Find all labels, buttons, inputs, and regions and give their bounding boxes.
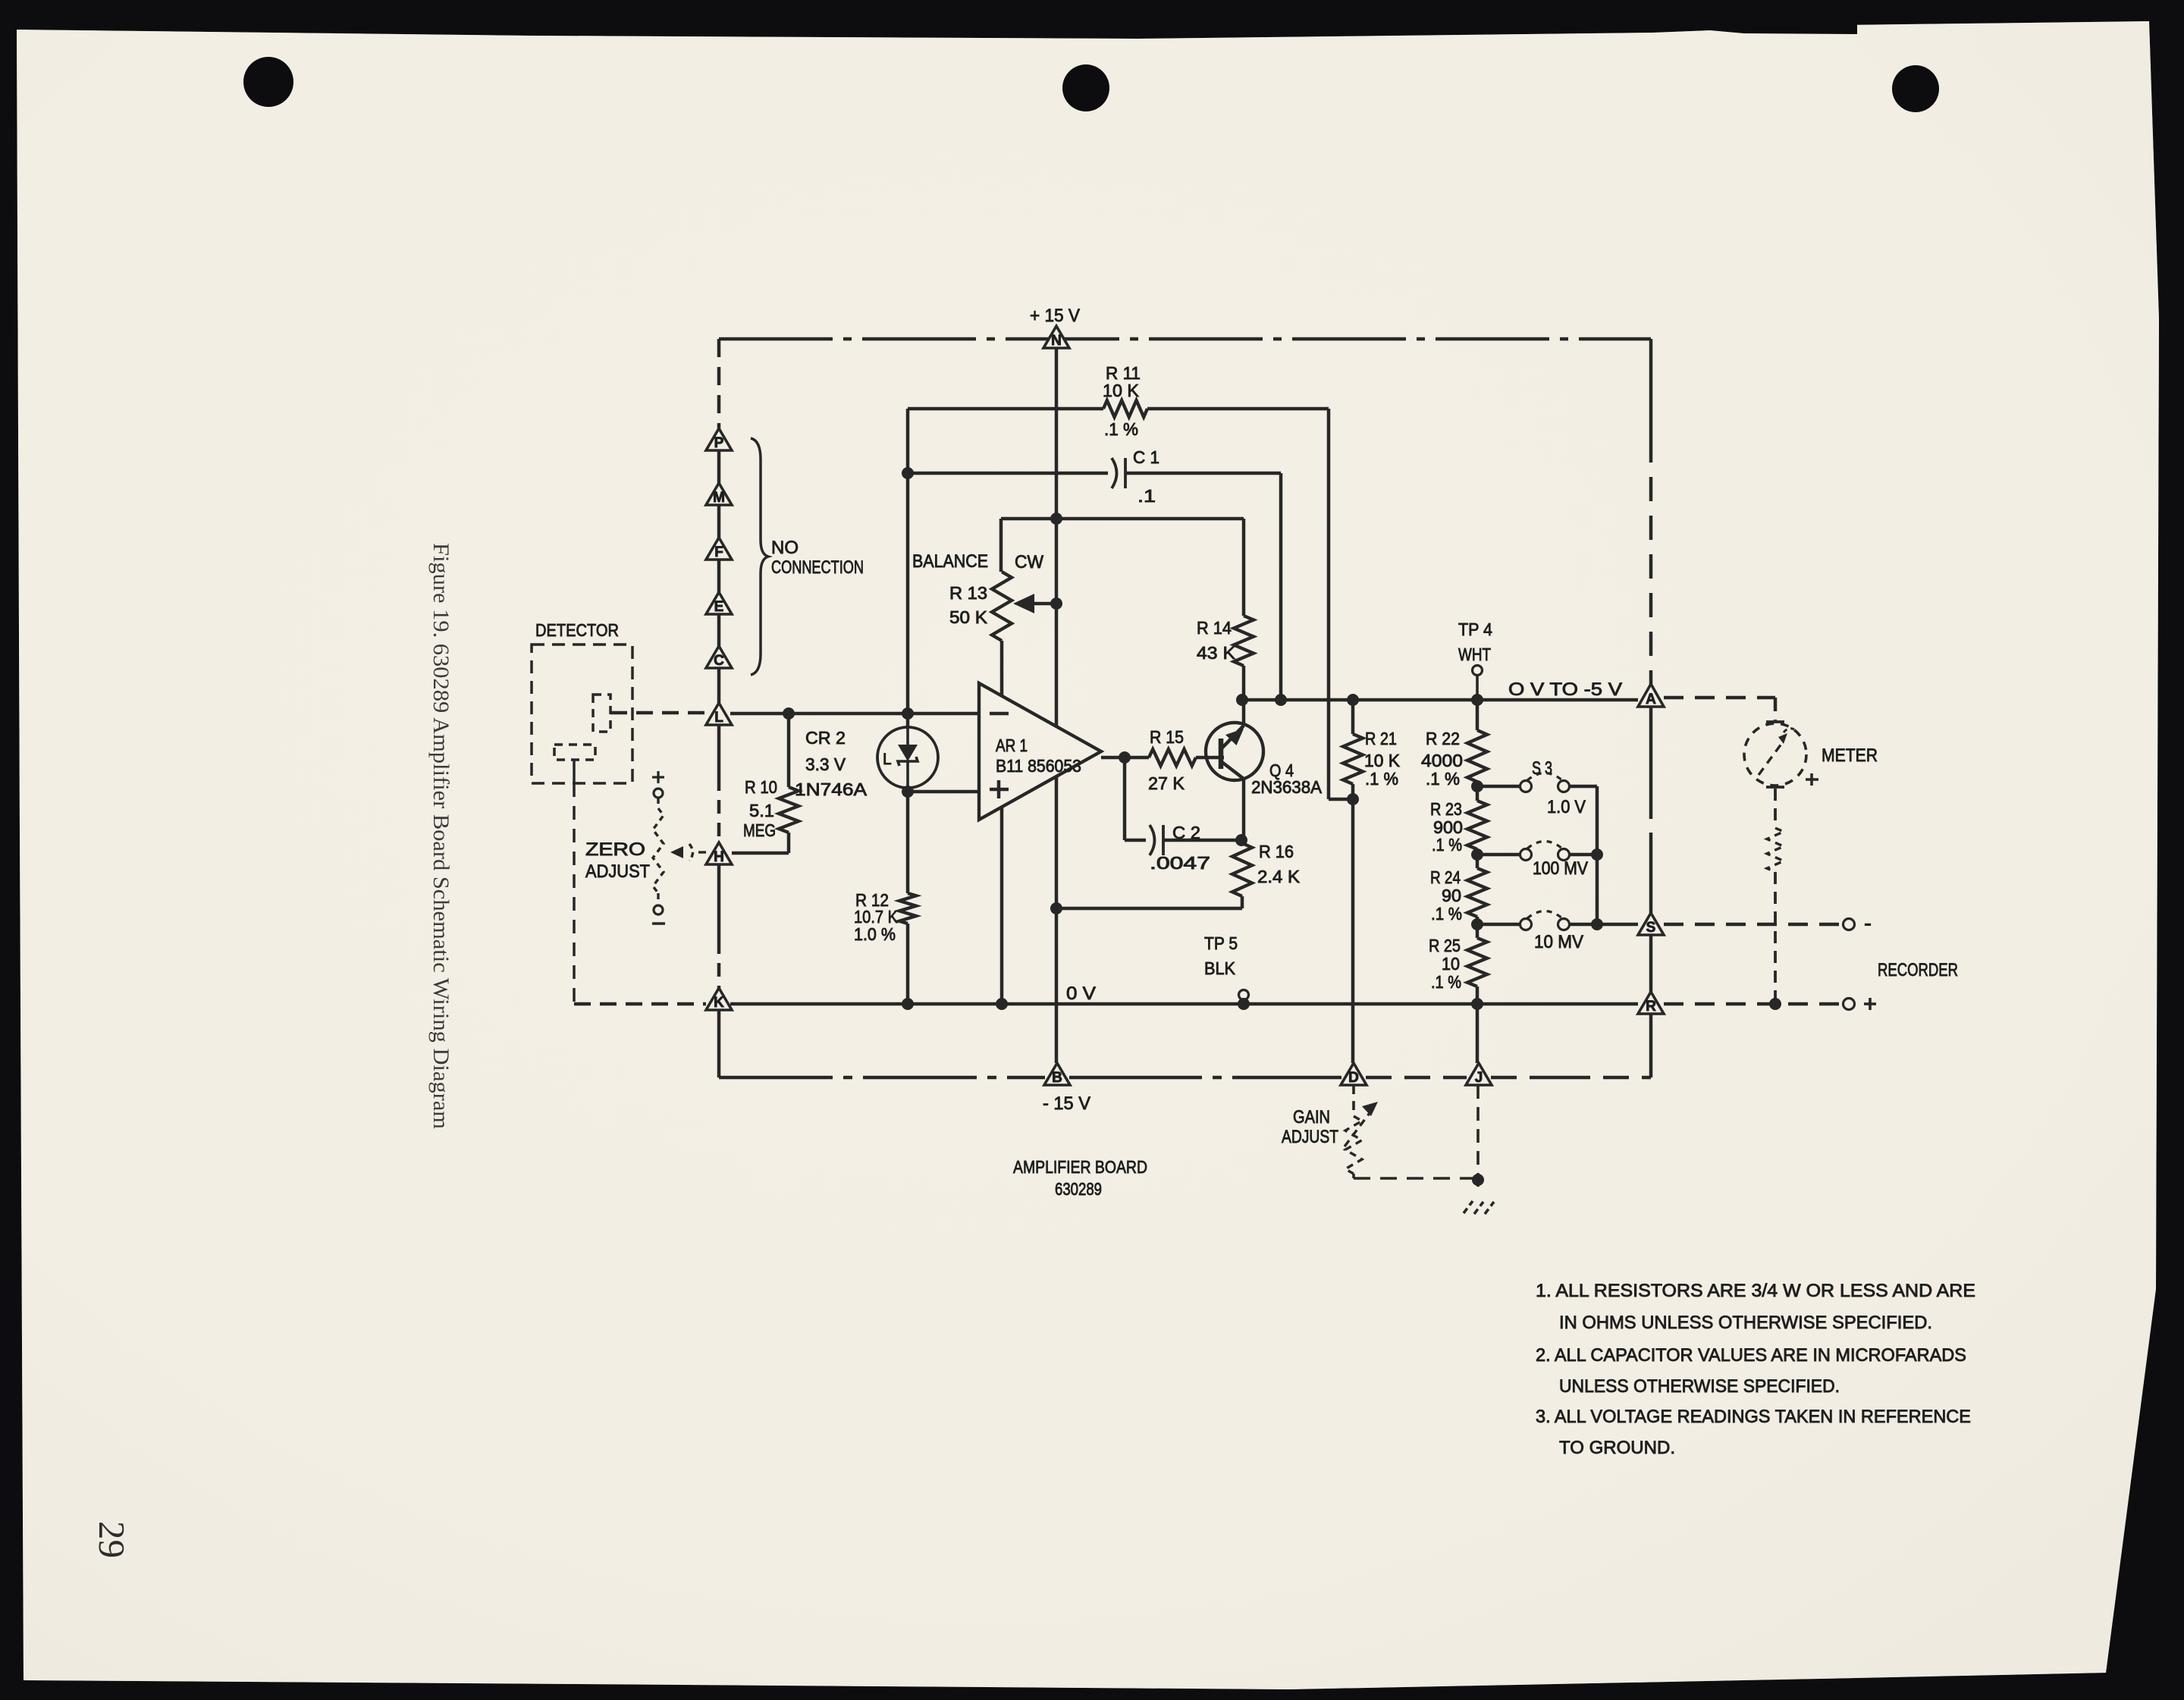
svg-text:2.4 K: 2.4 K [1257, 867, 1301, 886]
svg-text:+ 15 V: + 15 V [1030, 306, 1080, 326]
svg-text:ADJUST: ADJUST [585, 861, 650, 882]
svg-text:10 MV: 10 MV [1534, 932, 1583, 952]
svg-text:IN OHMS UNLESS OTHERWISE SPECI: IN OHMS UNLESS OTHERWISE SPECIFIED. [1559, 1313, 1932, 1333]
svg-text:TO GROUND.: TO GROUND. [1559, 1438, 1675, 1458]
svg-text:R 15: R 15 [1150, 727, 1184, 747]
svg-text:.1 %: .1 % [1104, 419, 1138, 439]
svg-text:.0047: .0047 [1150, 853, 1210, 873]
svg-text:.1 %: .1 % [1432, 835, 1462, 855]
svg-text:2. ALL CAPACITOR VALUES ARE I: 2. ALL CAPACITOR VALUES ARE IN MICROFARA… [1536, 1345, 1966, 1366]
svg-text:A: A [1646, 692, 1656, 707]
svg-text:B11 856053: B11 856053 [996, 756, 1081, 776]
svg-text:1.0 V: 1.0 V [1547, 797, 1586, 817]
svg-text:CR 2: CR 2 [805, 728, 846, 748]
svg-text:-: - [1864, 911, 1872, 936]
svg-text:DETECTOR: DETECTOR [535, 620, 619, 640]
svg-text:TP 5: TP 5 [1204, 933, 1238, 953]
svg-text:29: 29 [91, 1521, 133, 1558]
svg-text:R 14: R 14 [1197, 618, 1232, 638]
svg-text:10 K: 10 K [1103, 381, 1140, 400]
svg-text:S 3: S 3 [1532, 758, 1552, 779]
svg-text:BALANCE: BALANCE [912, 551, 988, 572]
svg-text:NO: NO [771, 538, 799, 558]
svg-text:.1 %: .1 % [1426, 769, 1460, 789]
svg-text:3. ALL VOLTAGE READINGS TAKEN: 3. ALL VOLTAGE READINGS TAKEN IN REFEREN… [1536, 1407, 1971, 1427]
svg-text:5.1: 5.1 [749, 801, 774, 820]
svg-text:J: J [1475, 1070, 1483, 1086]
svg-text:R: R [1646, 999, 1656, 1015]
svg-text:B: B [1052, 1070, 1062, 1086]
svg-text:P: P [714, 435, 724, 451]
svg-text:R 23: R 23 [1430, 799, 1462, 819]
svg-text:WHT: WHT [1458, 645, 1491, 664]
svg-text:RECORDER: RECORDER [1878, 960, 1958, 980]
svg-text:N: N [1051, 333, 1062, 349]
svg-text:C: C [714, 653, 724, 669]
svg-text:S: S [1646, 920, 1656, 936]
svg-text:D: D [1348, 1070, 1359, 1086]
svg-text:0 V: 0 V [1066, 983, 1096, 1004]
svg-text:H: H [714, 849, 724, 865]
svg-text:METER: METER [1822, 745, 1878, 766]
svg-text:.1 %: .1 % [1431, 904, 1462, 924]
svg-text:F: F [714, 544, 723, 560]
svg-text:O V TO -5 V: O V TO -5 V [1508, 679, 1622, 700]
svg-text:Figure 19. 630289 Amplifier B: Figure 19. 630289 Amplifier Board Schema… [428, 543, 453, 1129]
svg-text:MEG: MEG [743, 820, 776, 840]
svg-text:L: L [714, 710, 723, 726]
svg-text:K: K [714, 995, 724, 1011]
svg-text:4000: 4000 [1421, 751, 1463, 770]
svg-text:GAIN: GAIN [1293, 1107, 1330, 1128]
svg-text:2N3638A: 2N3638A [1251, 777, 1323, 797]
svg-text:L: L [883, 751, 892, 768]
svg-text:.1 %: .1 % [1431, 972, 1461, 992]
svg-text:ZERO: ZERO [585, 839, 645, 860]
svg-text:43 K: 43 K [1197, 643, 1236, 663]
svg-text:100 MV: 100 MV [1533, 858, 1588, 879]
svg-text:AR 1: AR 1 [996, 736, 1028, 755]
svg-text:.1: .1 [1137, 486, 1156, 506]
svg-text:R 13: R 13 [949, 583, 987, 603]
svg-text:10: 10 [1442, 954, 1460, 974]
svg-text:3.3 V: 3.3 V [805, 754, 846, 774]
svg-text:R 24: R 24 [1430, 867, 1461, 887]
svg-text:50 K: 50 K [949, 607, 988, 627]
svg-text:27 K: 27 K [1148, 773, 1185, 793]
svg-text:R 10: R 10 [745, 777, 777, 797]
svg-text:TP 4: TP 4 [1458, 619, 1492, 639]
svg-text:C 2: C 2 [1172, 823, 1200, 842]
svg-text:CONNECTION: CONNECTION [771, 557, 864, 578]
svg-text:R 22: R 22 [1426, 729, 1460, 748]
svg-text:- 15 V: - 15 V [1043, 1093, 1090, 1114]
svg-text:90: 90 [1442, 886, 1461, 905]
svg-text:R 25: R 25 [1429, 936, 1461, 955]
svg-text:E: E [714, 599, 724, 615]
svg-text:AMPLIFIER BOARD: AMPLIFIER BOARD [1013, 1157, 1147, 1177]
svg-text:10 K: 10 K [1364, 751, 1401, 770]
svg-text:C 1: C 1 [1133, 447, 1159, 467]
svg-text:R 21: R 21 [1365, 729, 1397, 748]
svg-text:.1 %: .1 % [1365, 769, 1398, 789]
svg-text:1. ALL RESISTORS ARE 3/4 W OR: 1. ALL RESISTORS ARE 3/4 W OR LESS AND A… [1536, 1281, 1975, 1301]
svg-text:UNLESS OTHERWISE SPECIFIED.: UNLESS OTHERWISE SPECIFIED. [1559, 1376, 1840, 1397]
svg-text:M: M [713, 490, 725, 506]
svg-text:1N746A: 1N746A [795, 779, 868, 799]
svg-text:630289: 630289 [1055, 1179, 1102, 1199]
svg-text:ADJUST: ADJUST [1282, 1127, 1338, 1147]
svg-text:R 16: R 16 [1259, 842, 1294, 861]
svg-text:CW: CW [1015, 552, 1043, 572]
svg-text:1.0 %: 1.0 % [854, 924, 896, 944]
svg-text:BLK: BLK [1204, 958, 1236, 978]
